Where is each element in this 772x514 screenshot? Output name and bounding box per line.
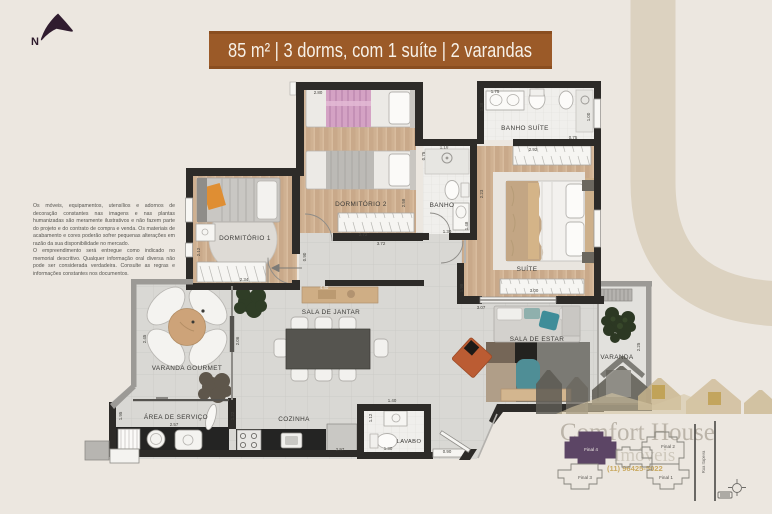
svg-text:1.22: 1.22	[230, 411, 235, 420]
svg-text:COZINHA: COZINHA	[278, 416, 310, 423]
svg-text:LAVABO: LAVABO	[397, 439, 422, 445]
svg-text:2.34: 2.34	[240, 277, 249, 282]
svg-text:2.57: 2.57	[170, 422, 179, 427]
svg-text:1.30: 1.30	[443, 229, 452, 234]
svg-text:Final 2: Final 2	[661, 444, 675, 449]
svg-text:2.97: 2.97	[336, 447, 345, 452]
svg-text:2.58: 2.58	[401, 198, 406, 207]
svg-text:2.45: 2.45	[142, 334, 147, 343]
svg-text:BANHO SUÍTE: BANHO SUÍTE	[501, 123, 549, 132]
svg-text:Final 1: Final 1	[659, 475, 673, 480]
svg-text:Rua Itapeva: Rua Itapeva	[701, 450, 706, 473]
svg-text:1.48: 1.48	[464, 221, 469, 230]
svg-text:4.40: 4.40	[320, 285, 329, 290]
svg-text:DORMITÓRIO 1: DORMITÓRIO 1	[219, 233, 271, 242]
svg-text:Final 4: Final 4	[584, 447, 598, 452]
svg-text:2.12: 2.12	[196, 247, 201, 256]
svg-text:0.75: 0.75	[569, 135, 578, 140]
svg-text:2.72: 2.72	[359, 232, 368, 237]
svg-text:Final 3: Final 3	[578, 475, 592, 480]
svg-text:N: N	[31, 36, 39, 48]
svg-text:0.90: 0.90	[443, 449, 452, 454]
svg-text:1.30: 1.30	[384, 446, 393, 451]
svg-text:VARANDA GOURMET: VARANDA GOURMET	[152, 365, 223, 372]
svg-text:1.12: 1.12	[368, 413, 373, 422]
svg-text:0.75: 0.75	[421, 151, 426, 160]
svg-text:2.23: 2.23	[479, 189, 484, 198]
svg-text:1.10: 1.10	[440, 145, 449, 150]
svg-text:1.95: 1.95	[118, 411, 123, 420]
svg-text:ÁREA DE SERVIÇO: ÁREA DE SERVIÇO	[144, 412, 208, 421]
svg-text:1.38: 1.38	[479, 102, 484, 111]
svg-text:SUÍTE: SUÍTE	[517, 264, 538, 273]
svg-text:3.72: 3.72	[377, 241, 386, 246]
svg-text:2.06: 2.06	[235, 336, 240, 345]
svg-text:2.25: 2.25	[636, 342, 641, 351]
svg-text:DORMITÓRIO 2: DORMITÓRIO 2	[335, 199, 387, 208]
svg-text:3.07: 3.07	[477, 305, 486, 310]
svg-text:3.00: 3.00	[530, 288, 539, 293]
svg-text:0.90: 0.90	[302, 252, 307, 261]
svg-text:85 m² | 3 dorms, com 1 suíte |: 85 m² | 3 dorms, com 1 suíte | 2 varanda…	[228, 40, 532, 62]
svg-text:SALA DE ESTAR: SALA DE ESTAR	[510, 336, 564, 343]
svg-text:1.00: 1.00	[586, 112, 591, 121]
svg-text:(11) 96425-5022: (11) 96425-5022	[607, 464, 663, 473]
svg-text:1.75: 1.75	[491, 89, 500, 94]
svg-text:1.40: 1.40	[388, 398, 397, 403]
svg-text:SALA DE JANTAR: SALA DE JANTAR	[302, 309, 360, 316]
svg-text:2.80: 2.80	[314, 90, 323, 95]
svg-text:1.98: 1.98	[459, 283, 464, 292]
svg-text:2.92: 2.92	[529, 147, 538, 152]
svg-text:BANHO: BANHO	[430, 202, 455, 209]
